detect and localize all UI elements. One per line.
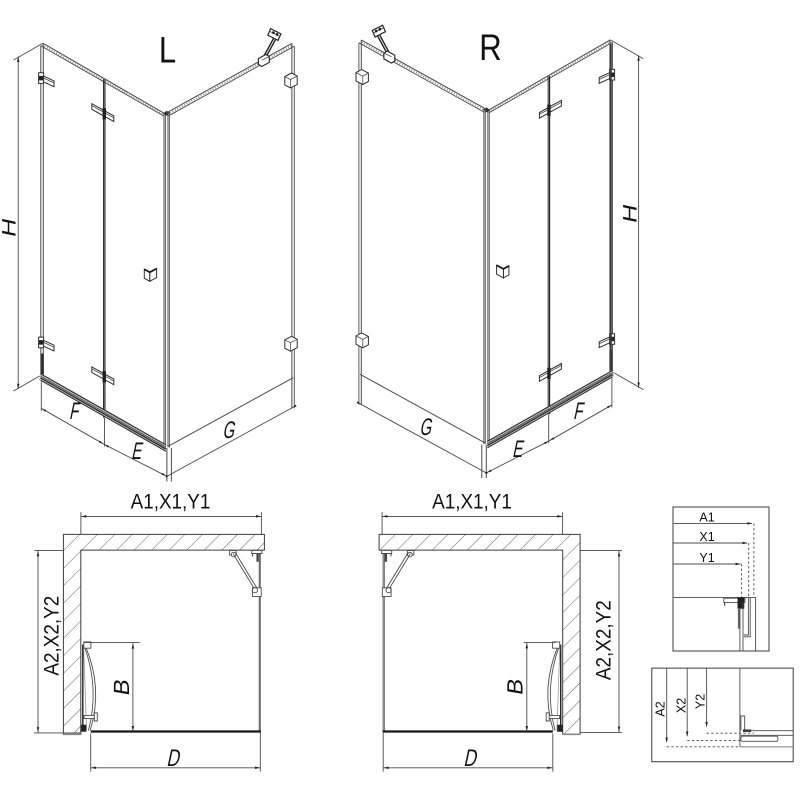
svg-text:X1: X1: [699, 530, 714, 544]
svg-text:R: R: [479, 28, 501, 69]
svg-text:A1: A1: [699, 510, 714, 524]
svg-text:A2,X2,Y2: A2,X2,Y2: [40, 596, 63, 676]
svg-text:Y2: Y2: [694, 694, 708, 709]
svg-text:A2,X2,Y2: A2,X2,Y2: [593, 600, 616, 680]
svg-text:A1,X1,Y1: A1,X1,Y1: [131, 490, 211, 513]
svg-text:A2: A2: [653, 701, 667, 716]
svg-text:X2: X2: [674, 698, 688, 713]
svg-text:Y1: Y1: [699, 551, 714, 565]
svg-text:L: L: [159, 30, 176, 71]
svg-text:A1,X1,Y1: A1,X1,Y1: [432, 490, 512, 513]
svg-text:H: H: [0, 216, 20, 239]
